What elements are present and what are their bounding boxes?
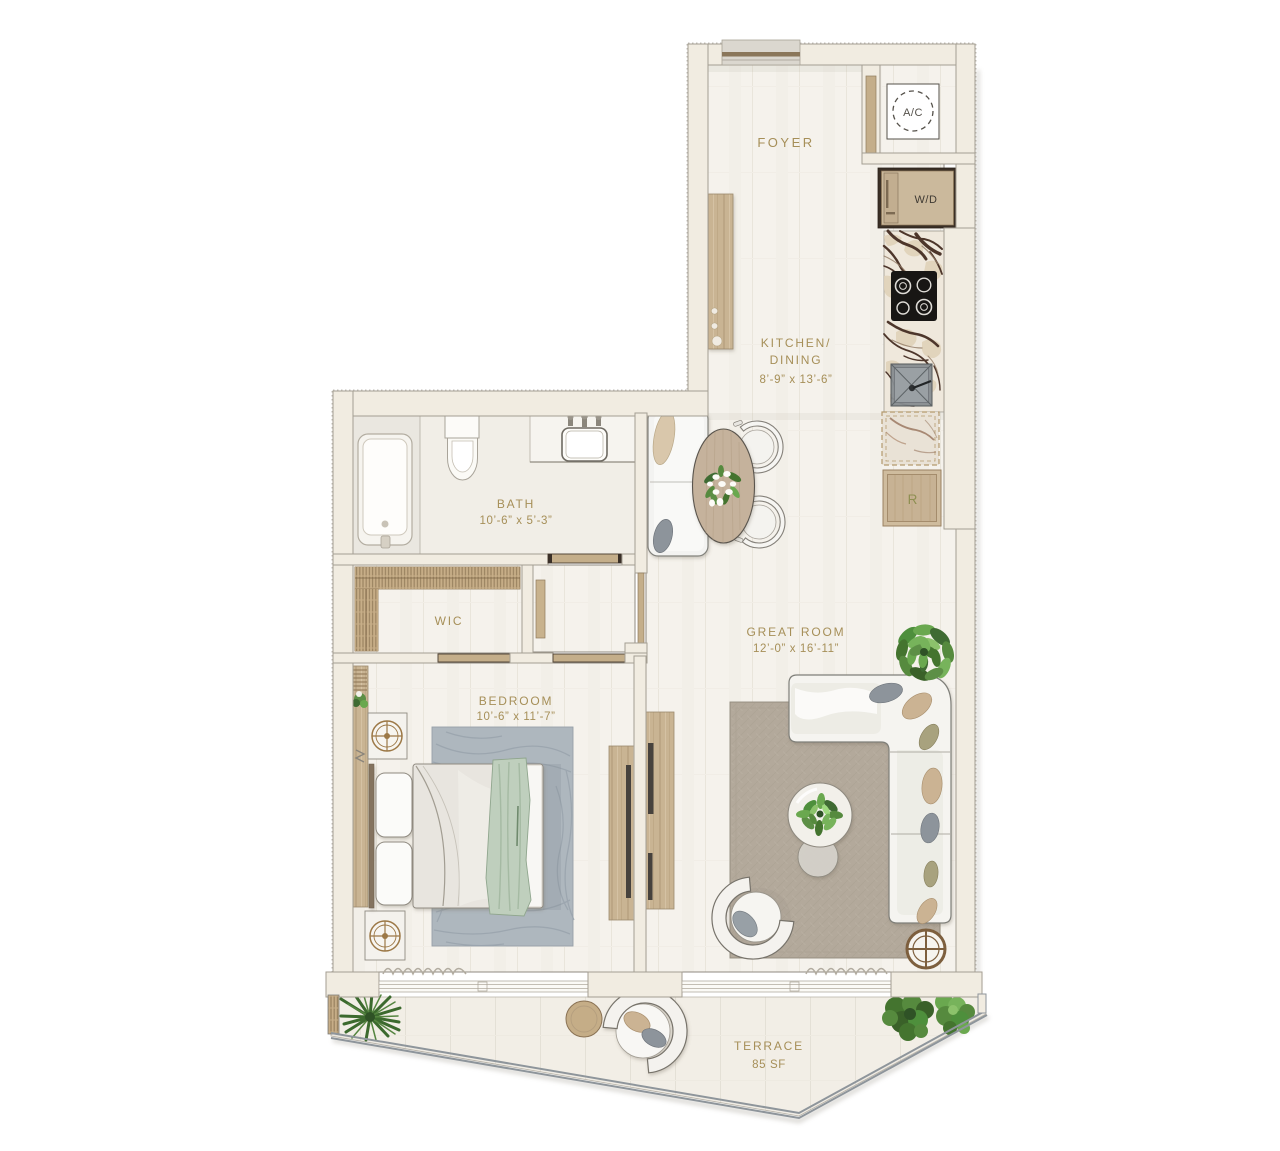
svg-text:BEDROOM: BEDROOM [479,694,554,708]
svg-text:10’-6” x 5’-3”: 10’-6” x 5’-3” [480,515,553,527]
svg-text:R: R [908,492,919,507]
svg-text:A/C: A/C [903,107,923,119]
svg-text:8’-9” x 13’-6”: 8’-9” x 13’-6” [760,374,833,386]
svg-text:10’-6” x 11’-7”: 10’-6” x 11’-7” [476,711,555,723]
svg-text:TERRACE: TERRACE [734,1039,804,1053]
svg-text:W/D: W/D [915,194,938,206]
svg-text:GREAT ROOM: GREAT ROOM [747,625,846,639]
svg-text:WIC: WIC [435,614,464,628]
svg-text:12’-0” x 16’-11”: 12’-0” x 16’-11” [753,643,839,655]
svg-text:85 SF: 85 SF [752,1059,786,1071]
svg-text:BATH: BATH [497,497,535,511]
svg-text:KITCHEN/: KITCHEN/ [761,336,831,350]
svg-text:FOYER: FOYER [757,135,814,150]
svg-text:DINING: DINING [770,353,823,367]
